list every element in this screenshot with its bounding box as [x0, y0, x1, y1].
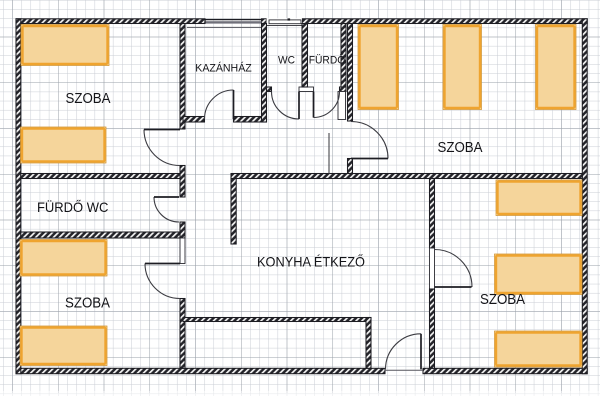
svg-text:KONYHA ÉTKEZŐ: KONYHA ÉTKEZŐ — [257, 254, 365, 270]
svg-text:SZOBA: SZOBA — [480, 291, 525, 308]
svg-text:SZOBA: SZOBA — [438, 139, 483, 156]
svg-text:SZOBA: SZOBA — [65, 295, 110, 312]
svg-text:KAZÁNHÁZ: KAZÁNHÁZ — [195, 61, 252, 74]
svg-text:FÜRDŐ: FÜRDŐ — [309, 53, 346, 67]
svg-text:FÜRDŐ WC: FÜRDŐ WC — [37, 198, 109, 215]
svg-text:SZOBA: SZOBA — [66, 90, 111, 107]
svg-text:WC: WC — [278, 55, 295, 67]
